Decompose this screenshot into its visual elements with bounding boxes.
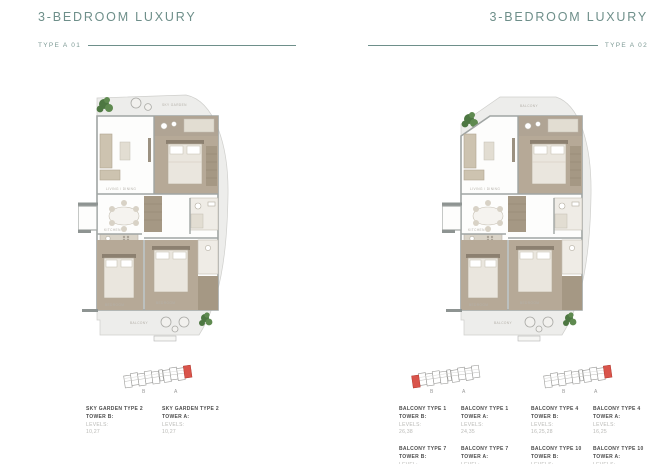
unit-annotations-right-2: BALCONY TYPE 4 TOWER B: LEVELS: 16,25,28… [531,406,649,464]
levels-value: 16,25,28 [531,429,589,437]
levels-label: LEVELS: [162,422,220,430]
key-plan-right-1: B A [408,364,488,396]
levels-label: LEVELS: [86,422,144,430]
unit-type: BALCONY TYPE 7 [399,446,457,454]
unit-type: BALCONY TYPE 7 [461,446,519,454]
floor-plan-type-a01: SKY GARDEN [78,88,238,343]
key-plan-left: B A [120,364,200,396]
unit-info: BALCONY TYPE 7 TOWER A: LEVEL: 11,38 [461,446,519,464]
unit-annotations-left: SKY GARDEN TYPE 2 TOWER B: LEVELS: 10,27… [86,406,220,437]
room-label-balcony-top: BALCONY [520,104,539,108]
unit-info: BALCONY TYPE 1 TOWER B: LEVELS: 26,38 [399,406,457,437]
levels-value: 26,38 [399,429,457,437]
floor-plan-type-a02: BALCONY [442,88,602,343]
tower-letter-b: B [562,389,566,395]
divider-rule [88,45,296,46]
page-title-right: 3-BEDROOM LUXURY [490,10,648,24]
highlighted-unit [183,365,192,378]
page-title-left: 3-BEDROOM LUXURY [38,10,196,24]
unit-tower: TOWER B: [399,414,457,422]
unit-type: BALCONY TYPE 4 [531,406,589,414]
highlighted-unit [603,365,612,378]
unit-type: BALCONY TYPE 1 [461,406,519,414]
unit-tower: TOWER A: [461,454,519,462]
unit-tower: TOWER B: [399,454,457,462]
unit-tower: TOWER B: [531,454,589,462]
levels-label: LEVELS: [461,422,519,430]
unit-tower: TOWER B: [531,414,589,422]
brochure-page: LIVING / DINING KITCHEN [0,0,660,464]
unit-tower: TOWER A: [162,414,220,422]
unit-type: BALCONY TYPE 10 [593,446,651,454]
levels-label: LEVELS: [593,422,651,430]
unit-info: BALCONY TYPE 7 TOWER B: LEVEL: 9 [399,446,457,464]
unit-tower: TOWER B: [86,414,144,422]
unit-type: SKY GARDEN TYPE 2 [162,406,220,414]
unit-type: BALCONY TYPE 10 [531,446,589,454]
tower-letter-a: A [594,389,598,395]
unit-tower: TOWER A: [593,454,651,462]
levels-label: LEVELS: [531,422,589,430]
levels-value: 24,35 [461,429,519,437]
unit-info: BALCONY TYPE 4 TOWER A: LEVELS: 16,25 [593,406,651,437]
unit-info: BALCONY TYPE 4 TOWER B: LEVELS: 16,25,28 [531,406,589,437]
key-plan-right-2: B A [540,364,620,396]
levels-value: 10,27 [162,429,220,437]
unit-info: SKY GARDEN TYPE 2 TOWER B: LEVELS: 10,27 [86,406,144,437]
unit-info: BALCONY TYPE 10 TOWER A: LEVELS: 5,7 [593,446,651,464]
levels-value: 16,25 [593,429,651,437]
unit-tower: TOWER A: [593,414,651,422]
type-row-right: TYPE A 02 [368,42,648,49]
unit-info: BALCONY TYPE 1 TOWER A: LEVELS: 24,35 [461,406,519,437]
unit-type: BALCONY TYPE 4 [593,406,651,414]
type-label-a02: TYPE A 02 [605,42,648,49]
room-label-sky-garden: SKY GARDEN [162,103,187,107]
unit-info: SKY GARDEN TYPE 2 TOWER A: LEVELS: 10,27 [162,406,220,437]
levels-value: 10,27 [86,429,144,437]
unit-type: BALCONY TYPE 1 [399,406,457,414]
type-row-left: TYPE A 01 [38,42,296,49]
highlighted-unit [412,375,421,388]
divider-rule [368,45,598,46]
tower-letter-a: A [174,389,178,395]
unit-info: BALCONY TYPE 10 TOWER B: LEVELS: 5,7 [531,446,589,464]
unit-annotations-right-1: BALCONY TYPE 1 TOWER B: LEVELS: 26,38 BA… [399,406,517,464]
type-label-a01: TYPE A 01 [38,42,81,49]
unit-tower: TOWER A: [461,414,519,422]
tower-letter-b: B [142,389,146,395]
tower-letter-a: A [462,389,466,395]
unit-type: SKY GARDEN TYPE 2 [86,406,144,414]
tower-letter-b: B [430,389,434,395]
levels-label: LEVELS: [399,422,457,430]
